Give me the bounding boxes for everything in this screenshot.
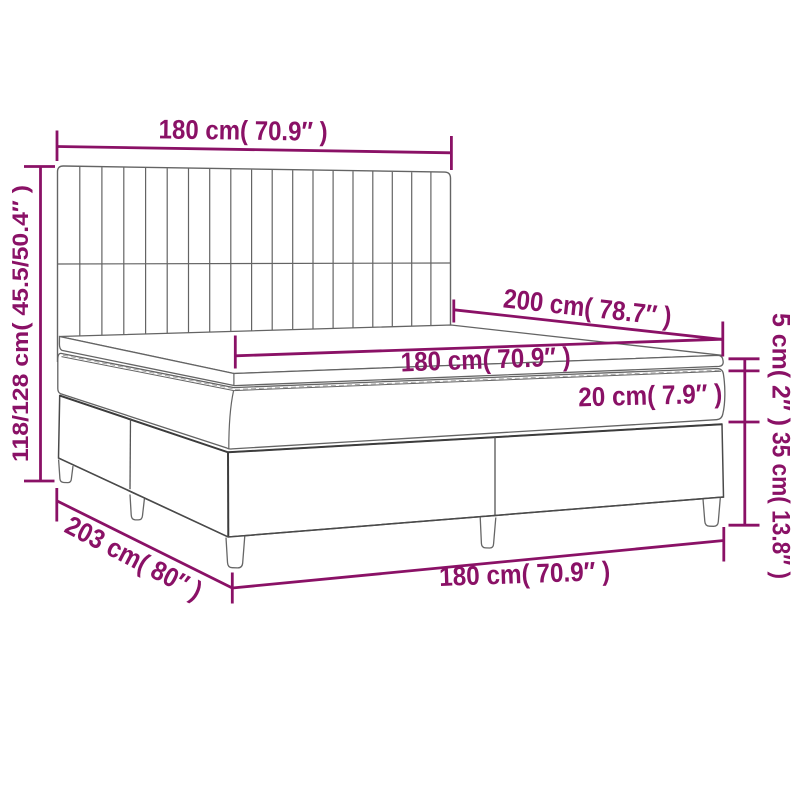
svg-text:35 cm( 13.8″ ): 35 cm( 13.8″ ) — [767, 432, 795, 579]
svg-text:118/128 cm( 45.5/50.4″ ): 118/128 cm( 45.5/50.4″ ) — [8, 185, 33, 462]
svg-text:180 cm( 70.9″ ): 180 cm( 70.9″ ) — [439, 556, 611, 592]
svg-text:180 cm( 70.9″ ): 180 cm( 70.9″ ) — [400, 342, 571, 378]
svg-text:5 cm( 2″ ): 5 cm( 2″ ) — [767, 313, 795, 426]
svg-text:20 cm( 7.9″ ): 20 cm( 7.9″ ) — [578, 379, 723, 413]
svg-text:180 cm( 70.9″ ): 180 cm( 70.9″ ) — [158, 114, 327, 146]
